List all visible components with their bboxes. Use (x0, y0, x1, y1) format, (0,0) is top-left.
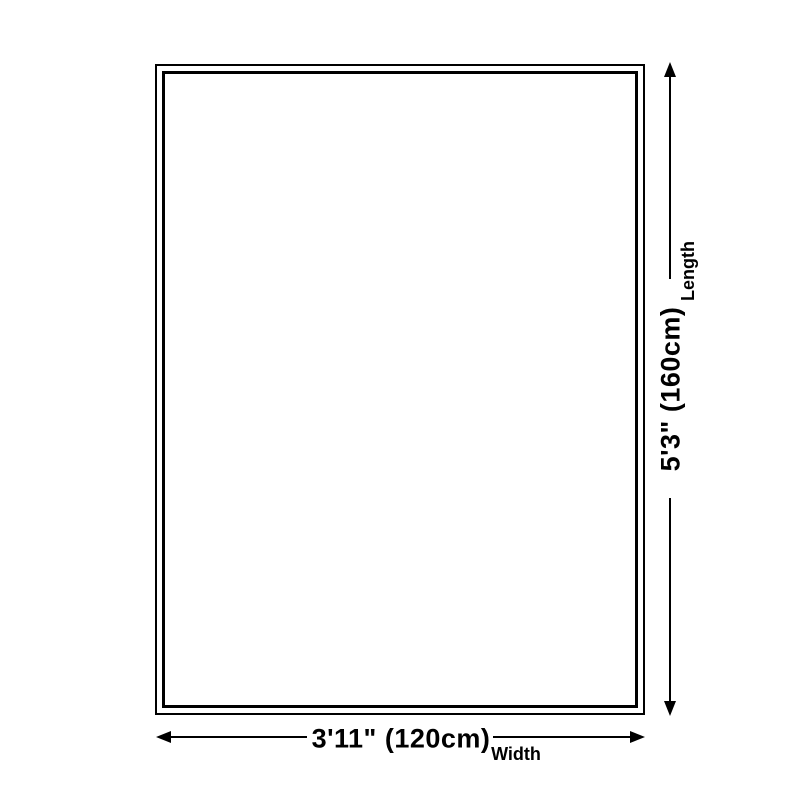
width-dimension-line-right (493, 736, 632, 738)
width-dimension-line-left (168, 736, 307, 738)
width-axis-label: Width (491, 745, 541, 763)
length-axis-label: Length (679, 241, 697, 301)
width-arrow-right-icon (630, 731, 645, 743)
width-value-label: 3'11" (120cm) (312, 726, 491, 753)
length-dimension-line-lower (669, 498, 671, 702)
length-dimension-line-upper (669, 74, 671, 279)
rug-outline (155, 64, 645, 715)
rug-inner-outline (162, 71, 638, 708)
length-arrow-down-icon (664, 701, 676, 716)
size-diagram: 5'3" (160cm) Length 3'11" (120cm) Width (0, 0, 800, 800)
length-value-label: 5'3" (160cm) (658, 307, 685, 472)
